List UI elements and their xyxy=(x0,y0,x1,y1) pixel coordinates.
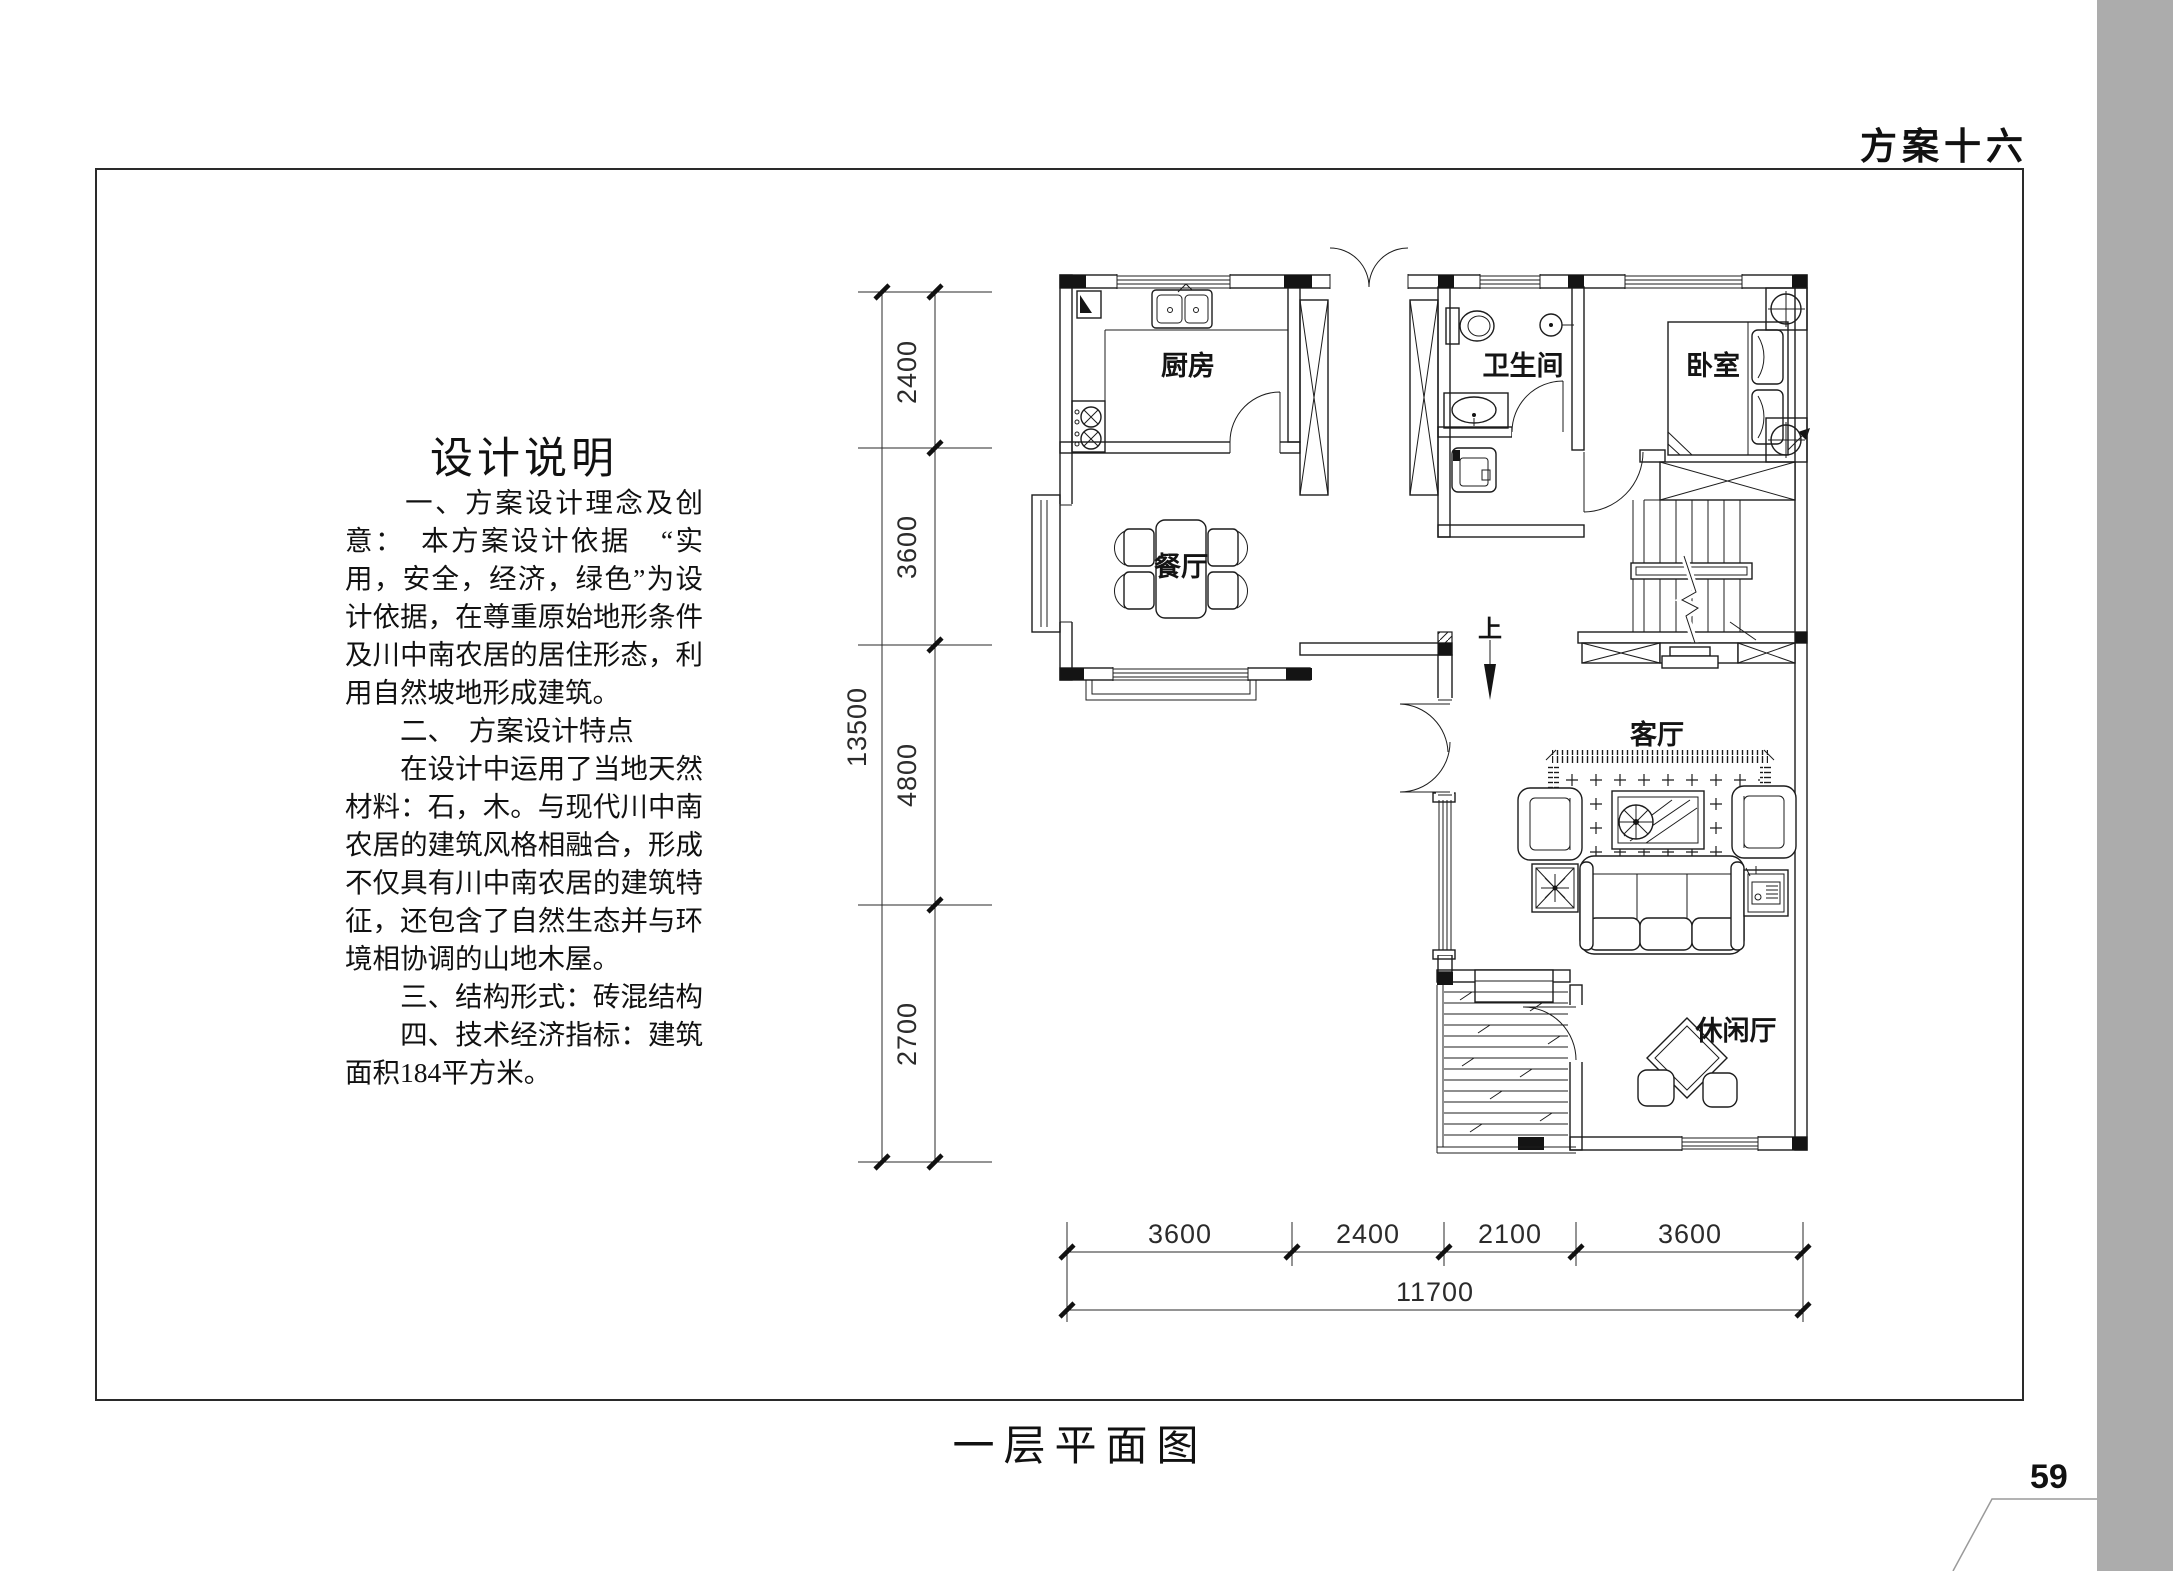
dining-chair-icon xyxy=(1114,572,1154,609)
book-page: 方案十六 设计说明 一、方案设计理念及创 意： 本方案设计依据 “实 用，安全，… xyxy=(0,0,2173,1571)
coffee-table-icon xyxy=(1612,791,1704,849)
living-furniture xyxy=(1518,643,1796,954)
bed-icon xyxy=(1668,322,1788,455)
shower-mixer-icon xyxy=(1540,314,1574,336)
dining-chair-icon xyxy=(1208,529,1248,566)
phone-table-icon xyxy=(1744,866,1788,916)
room-label-dining: 餐厅 xyxy=(1154,552,1208,582)
dim-bottom-4: 3600 xyxy=(1658,1219,1722,1249)
dim-bottom-3: 2100 xyxy=(1478,1219,1542,1249)
dim-left-4: 2700 xyxy=(892,1002,922,1066)
dim-left-3: 4800 xyxy=(892,743,922,807)
stove-icon xyxy=(1072,401,1105,452)
dim-bottom-1: 3600 xyxy=(1148,1219,1212,1249)
flue-shaft-icon xyxy=(1300,300,1438,495)
leisure-furniture xyxy=(1437,985,1737,1153)
room-label-living: 客厅 xyxy=(1630,719,1684,750)
windows xyxy=(1032,273,1758,1152)
dining-chair-icon xyxy=(1114,529,1154,566)
washing-machine-icon xyxy=(1452,448,1496,492)
bathroom-sink-icon xyxy=(1444,393,1508,428)
armchair-icon xyxy=(1518,788,1582,860)
dim-left-total: 13500 xyxy=(842,687,872,767)
room-label-bedroom: 卧室 xyxy=(1686,350,1740,381)
page-corner-mark xyxy=(1953,1499,2097,1571)
stool-icon xyxy=(1638,1070,1674,1106)
dim-bottom-total: 11700 xyxy=(1396,1277,1474,1307)
floor-plan-drawing: 2400 3600 4800 2700 13500 3600 2400 2100… xyxy=(0,0,2173,1571)
armchair-icon xyxy=(1732,786,1796,858)
tv-cabinet-icon xyxy=(1582,643,1795,668)
sofa-icon xyxy=(1580,856,1744,954)
dining-chair-icon xyxy=(1208,572,1248,609)
dim-left-1: 2400 xyxy=(892,340,922,404)
room-label-bathroom: 卫生间 xyxy=(1483,351,1564,381)
plant-box-icon xyxy=(1532,864,1578,912)
room-label-kitchen: 厨房 xyxy=(1161,351,1215,381)
toilet-icon xyxy=(1446,308,1494,344)
kitchen-sink-icon xyxy=(1152,284,1212,328)
dim-bottom-2: 2400 xyxy=(1336,1219,1400,1249)
stair-up-arrow xyxy=(1484,640,1496,700)
wardrobe-icon xyxy=(1660,462,1795,500)
stool-icon xyxy=(1703,1073,1737,1107)
dim-left-2: 3600 xyxy=(892,515,922,579)
door-arc xyxy=(1230,392,1280,442)
stair-up-label: 上 xyxy=(1478,616,1502,643)
bathroom-fixtures xyxy=(1444,308,1574,492)
room-label-leisure: 休闲厅 xyxy=(1695,1016,1777,1046)
wood-deck-icon xyxy=(1437,985,1576,1153)
fridge-icon xyxy=(1077,291,1101,318)
